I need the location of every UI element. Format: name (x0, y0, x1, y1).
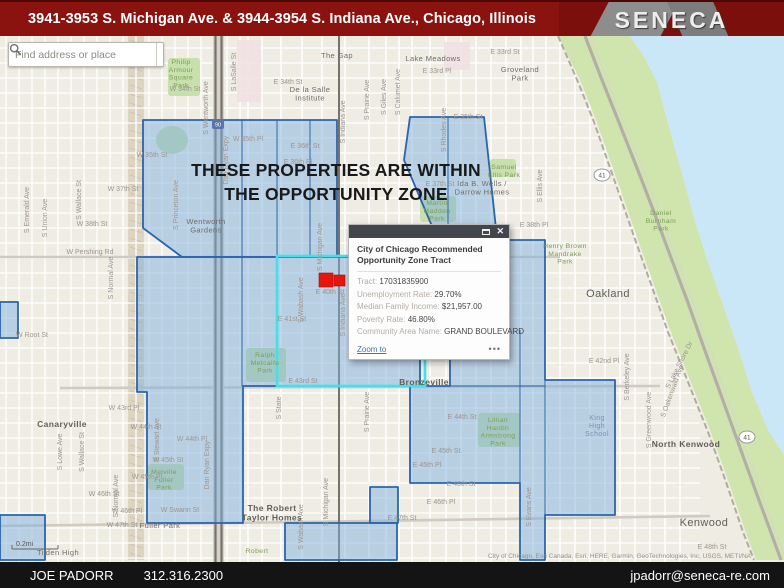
statement-line-1: THESE PROPERTIES ARE WITHIN (118, 158, 554, 182)
map-area-label: De la SalleInstitute (290, 85, 331, 103)
svg-text:S Emerald Ave: S Emerald Ave (24, 187, 31, 233)
popup-field-row: Tract: 17031835900 (357, 277, 501, 286)
svg-text:S Normal Ave: S Normal Ave (108, 257, 115, 300)
opportunity-zone-statement: THESE PROPERTIES ARE WITHIN THE OPPORTUN… (118, 158, 554, 206)
tract-info-popup: ✕ City of Chicago Recommended Opportunit… (348, 224, 510, 360)
close-icon[interactable]: ✕ (496, 227, 504, 236)
map-area-label: North Kenwood (652, 439, 720, 449)
search-input[interactable] (9, 43, 156, 66)
popup-fields: Tract: 17031835900Unemployment Rate: 29.… (357, 277, 501, 336)
map-area-label: Canaryville (37, 419, 87, 429)
svg-text:S LaSalle St: S LaSalle St (231, 53, 238, 92)
svg-text:E 45th St: E 45th St (432, 448, 461, 455)
popup-titlebar: ✕ (349, 225, 509, 238)
svg-text:S Indiana Ave: S Indiana Ave (340, 293, 347, 336)
agent-phone: 312.316.2300 (144, 568, 224, 583)
map-attribution: City of Chicago, Esri Canada, Esri, HERE… (488, 553, 752, 560)
svg-text:S Wentworth Ave: S Wentworth Ave (203, 81, 210, 135)
svg-text:E 45th Pl: E 45th Pl (413, 462, 442, 469)
map-scale: 0.2mi (16, 541, 34, 548)
svg-text:S Michigan Ave: S Michigan Ave (323, 478, 330, 526)
popup-field-row: Poverty Rate: 46.80% (357, 315, 501, 324)
svg-text:S Indiana Ave: S Indiana Ave (340, 100, 347, 143)
agent-email: jpadorr@seneca-re.com (630, 568, 784, 583)
svg-text:E 43rd St: E 43rd St (288, 378, 317, 385)
popup-body: City of Chicago Recommended Opportunity … (349, 238, 509, 359)
svg-text:S Prairie Ave: S Prairie Ave (364, 80, 371, 120)
svg-text:W Swann St: W Swann St (161, 507, 200, 514)
property-marker[interactable] (334, 275, 345, 286)
svg-text:S Union Ave: S Union Ave (42, 199, 49, 238)
svg-text:S State: S State (276, 396, 283, 419)
more-options-icon[interactable]: ••• (489, 344, 501, 354)
svg-text:E 48th St: E 48th St (698, 544, 727, 551)
search-button[interactable] (156, 43, 163, 66)
svg-text:41: 41 (598, 172, 606, 179)
map-area-label: Fuller Park (140, 521, 181, 530)
search-icon (9, 43, 22, 56)
property-marker[interactable] (319, 273, 333, 287)
svg-text:E 33rd Pl: E 33rd Pl (423, 68, 452, 75)
map-area-label: Lake Meadows (405, 54, 460, 63)
page-title: 3941-3953 S. Michigan Ave. & 3944-3954 S… (0, 11, 536, 27)
svg-text:E 35th St: E 35th St (454, 114, 483, 121)
svg-text:W 44th Pl: W 44th Pl (177, 436, 208, 443)
svg-text:W Root St: W Root St (16, 332, 48, 339)
svg-text:Dan Ryan Expy: Dan Ryan Expy (204, 440, 211, 489)
svg-text:S Berkeley Ave: S Berkeley Ave (624, 353, 631, 400)
svg-text:S Lowe Ave: S Lowe Ave (57, 433, 64, 470)
svg-text:W Pershing Rd: W Pershing Rd (66, 249, 113, 256)
svg-text:E 46th Pl: E 46th Pl (427, 499, 456, 506)
svg-text:E 36th St: E 36th St (291, 143, 320, 150)
map-area-label: Bronzeville (399, 377, 449, 387)
svg-text:90: 90 (215, 123, 221, 129)
svg-text:E 46th St: E 46th St (447, 481, 476, 488)
address-search-box (8, 42, 164, 67)
agent-name: JOE PADORR (30, 568, 114, 583)
svg-text:S Stewart Ave: S Stewart Ave (154, 418, 161, 462)
map-area-label: The Gap (321, 51, 353, 60)
contact-footer: JOE PADORR 312.316.2300 jpadorr@seneca-r… (0, 562, 784, 588)
svg-text:S Giles Ave: S Giles Ave (381, 79, 388, 115)
popup-field-row: Median Family Income: $21,957.00 (357, 302, 501, 311)
svg-text:41: 41 (743, 434, 751, 441)
map-area-label: Kenwood (680, 517, 729, 529)
popup-field-row: Unemployment Rate: 29.70% (357, 290, 501, 299)
map-area-label: WentworthGardens (186, 217, 225, 235)
svg-text:S Calumet Ave: S Calumet Ave (395, 69, 402, 115)
svg-text:W 47th St: W 47th St (107, 522, 138, 529)
svg-text:S Prairie Ave: S Prairie Ave (364, 392, 371, 432)
svg-text:E 44th St: E 44th St (448, 414, 477, 421)
map-area-label: Robert (246, 548, 269, 555)
svg-text:S Rhodes Ave: S Rhodes Ave (441, 108, 448, 152)
svg-text:E 38th Pl: E 38th Pl (520, 222, 549, 229)
svg-text:W 35th Pl: W 35th Pl (233, 136, 264, 143)
svg-text:S Wallace St: S Wallace St (76, 180, 83, 220)
svg-text:S Normal Ave: S Normal Ave (113, 475, 120, 518)
map-area-label: The RobertTaylor Homes (242, 503, 302, 523)
svg-text:S Michigan Ave: S Michigan Ave (317, 223, 324, 271)
svg-text:S Evans Ave: S Evans Ave (526, 487, 533, 527)
svg-text:S Wabash Ave: S Wabash Ave (298, 504, 305, 550)
svg-text:W 38th St: W 38th St (77, 221, 108, 228)
svg-text:E 33rd St: E 33rd St (490, 49, 519, 56)
popup-field-row: Community Area Name: GRAND BOULEVARD (357, 327, 501, 336)
svg-text:E 42nd Pl: E 42nd Pl (589, 358, 620, 365)
statement-line-2: THE OPPORTUNITY ZONE (118, 182, 554, 206)
map-area-label: Oakland (586, 288, 630, 300)
maximize-icon[interactable] (482, 229, 490, 235)
popup-title: City of Chicago Recommended Opportunity … (357, 244, 501, 272)
svg-text:S Wabash Ave: S Wabash Ave (298, 277, 305, 323)
seneca-logo: SENECA (559, 2, 784, 38)
svg-text:S Wallace St: S Wallace St (79, 432, 86, 472)
svg-text:W 43rd Pl: W 43rd Pl (109, 405, 140, 412)
app-header: 3941-3953 S. Michigan Ave. & 3944-3954 S… (0, 0, 784, 36)
map-canvas[interactable]: E 33rd StE 33rd PlW 34th StE 34th StW 35… (0, 36, 784, 562)
svg-text:E 47th St: E 47th St (388, 515, 417, 522)
logo-wordmark: SENECA (559, 2, 784, 38)
zoom-to-link[interactable]: Zoom to (357, 345, 386, 354)
